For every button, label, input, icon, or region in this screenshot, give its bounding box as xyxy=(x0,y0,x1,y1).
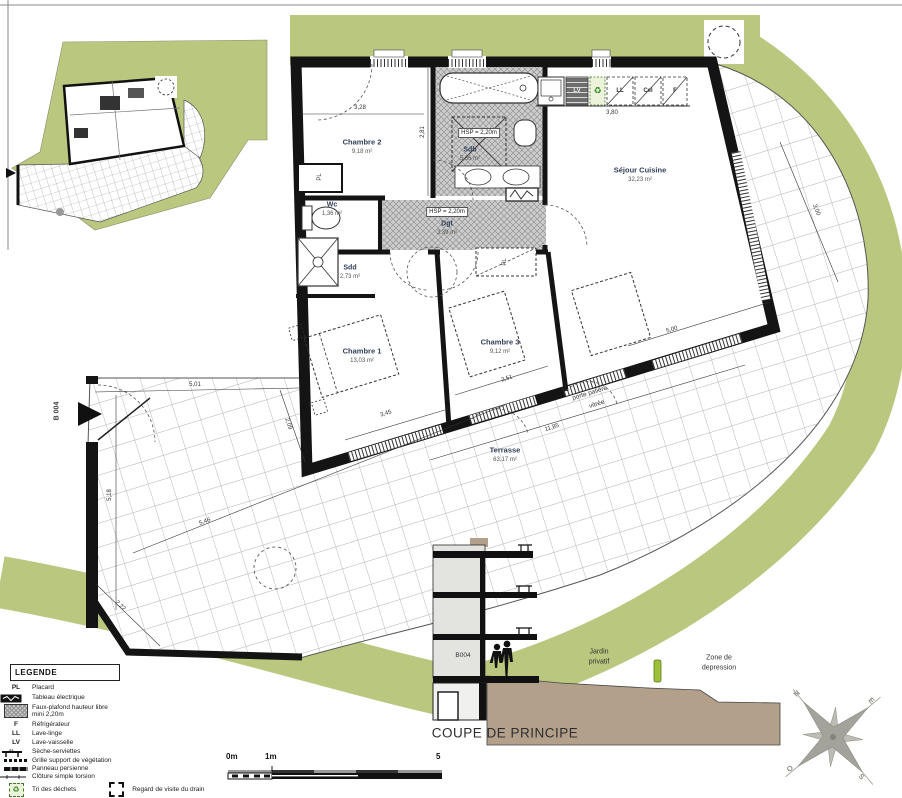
scale-5: 5 xyxy=(436,752,440,761)
section-title: COUPE DE PRINCIPE xyxy=(432,726,579,740)
room-area-chambre-1: 13,03 m² xyxy=(350,358,374,364)
room-area-sejour-cuisine: 32,23 m² xyxy=(628,177,652,183)
room-area-terrasse: 63,17 m² xyxy=(493,457,517,463)
legend-item-tri-dechets: ♻ Tri des déchets Regard de visite du dr… xyxy=(0,782,204,797)
dim-2-81: 2,81 xyxy=(420,126,426,138)
room-label-chambre-1: Chambre 1 xyxy=(343,347,382,355)
room-label-sdd: Sdd xyxy=(343,265,356,272)
legend-title-box: LEGENDE xyxy=(10,664,120,681)
room-label-wc: Wc xyxy=(327,202,338,209)
room-label-dgt: Dgt xyxy=(441,221,453,228)
dim-3-80: 3,80 xyxy=(606,110,618,116)
room-label-chambre-2: Chambre 2 xyxy=(343,138,382,146)
scale-0m: 0m xyxy=(226,752,238,761)
dim-5-01: 5,01 xyxy=(189,382,201,388)
room-label-chambre-3: Chambre 3 xyxy=(481,338,520,346)
section-unit-label: B004 xyxy=(455,653,470,660)
legend-title: LEGENDE xyxy=(15,668,57,677)
washer-label: LL xyxy=(616,88,623,94)
fridge-label: F xyxy=(673,88,677,94)
hsp-tag-sdb: HSP = 2,20m xyxy=(458,128,500,138)
legend-item-tableau-electrique: Tableau électrique xyxy=(0,694,85,701)
kitchen-appliances xyxy=(536,77,690,106)
room-label-terrasse: Terrasse xyxy=(490,446,521,454)
louver-panel-icon xyxy=(0,767,32,771)
jardin-privatif-label-1: Jardin xyxy=(589,649,608,656)
room-area-chambre-3: 9,12 m² xyxy=(490,349,510,355)
legend-item-cloture: Clôture simple torsion xyxy=(0,773,95,780)
placard-key: PL xyxy=(0,684,32,691)
mini-site-plan xyxy=(6,40,267,230)
room-area-sdb: 5,36 m² xyxy=(460,156,480,162)
dim-3-28: 3,28 xyxy=(354,105,366,111)
zone-depression-label-1: Zone de xyxy=(706,655,732,662)
room-area-dgt: 3,39 m² xyxy=(437,230,457,236)
legend-item-lave-vaisselle: LV Lave-vaisselle xyxy=(0,739,73,746)
dim-5-18: 5,18 xyxy=(107,489,113,501)
waste-sorting-icon: ♻ xyxy=(0,783,32,797)
room-label-sejour-cuisine: Séjour Cuisine xyxy=(614,166,667,174)
scale-bar xyxy=(228,766,442,779)
entrance-label: B 004 xyxy=(54,402,61,421)
washer-key: LL xyxy=(0,730,32,737)
lowered-ceiling-swatch xyxy=(0,704,32,718)
jardin-privatif-label-2: privatif xyxy=(589,659,610,666)
floor-plan-sheet: Chambre 2 9,18 m² Sdb 5,36 m² Wc 1,36 m²… xyxy=(0,0,902,798)
placard-label-2: PL xyxy=(502,258,508,265)
legend-item-refrigerateur: F Réfrigérateur xyxy=(0,721,70,728)
svg-text:ss: ss xyxy=(9,748,14,753)
recycle-icon: ♻ xyxy=(593,87,601,96)
room-area-sdd: 2,73 m² xyxy=(340,274,360,280)
legend-item-lave-linge: LL Lave-linge xyxy=(0,730,62,737)
placard-label-1: PL xyxy=(317,173,323,180)
legend-item-panneau-persienne: Panneau persienne xyxy=(0,765,88,772)
hsp-tag-dgt: HSP = 2,20m xyxy=(426,207,468,217)
legend-item-placard: PL Placard xyxy=(0,684,54,691)
scale-1m: 1m xyxy=(265,752,277,761)
room-area-chambre-2: 9,18 m² xyxy=(352,149,372,155)
legend-item-faux-plafond: Faux-plafond hauteur libre mini 2,20m xyxy=(0,704,108,718)
legend-item-seche-serviettes: ss Sèche-serviettes xyxy=(0,748,80,755)
cellar-label: Cel xyxy=(643,88,652,94)
vegetation-marker xyxy=(654,660,661,682)
room-label-sdb: Sdb xyxy=(463,147,476,154)
zone-depression-label-2: depression xyxy=(702,665,736,672)
dishwasher-key: LV xyxy=(0,739,32,746)
vegetation-grid-icon xyxy=(0,759,32,762)
drain-inspection-icon xyxy=(100,782,132,797)
room-area-wc: 1,36 m² xyxy=(322,211,342,217)
plan-drawing xyxy=(0,0,902,798)
dishwasher-label: LV xyxy=(573,88,580,94)
legend-item-grille-vegetation: Grille support de végétation xyxy=(0,757,112,764)
fridge-key: F xyxy=(0,721,32,728)
